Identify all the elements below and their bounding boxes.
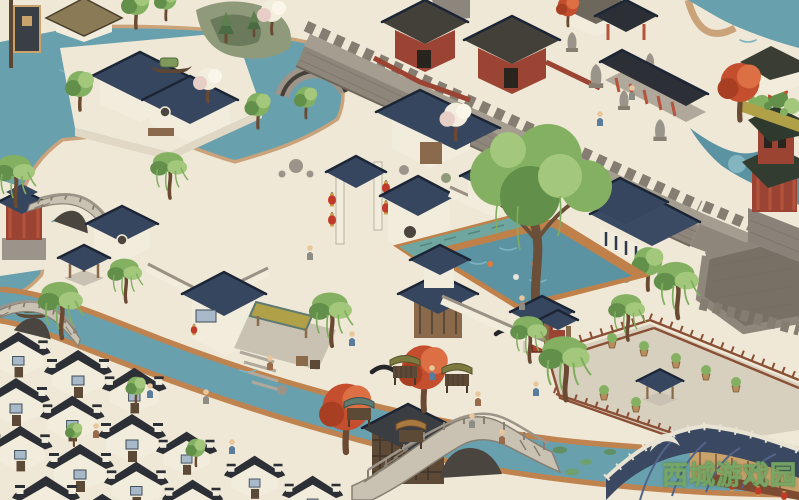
game-scene[interactable]: [0, 0, 799, 500]
game-viewport[interactable]: 西城游戏园: [0, 0, 799, 500]
